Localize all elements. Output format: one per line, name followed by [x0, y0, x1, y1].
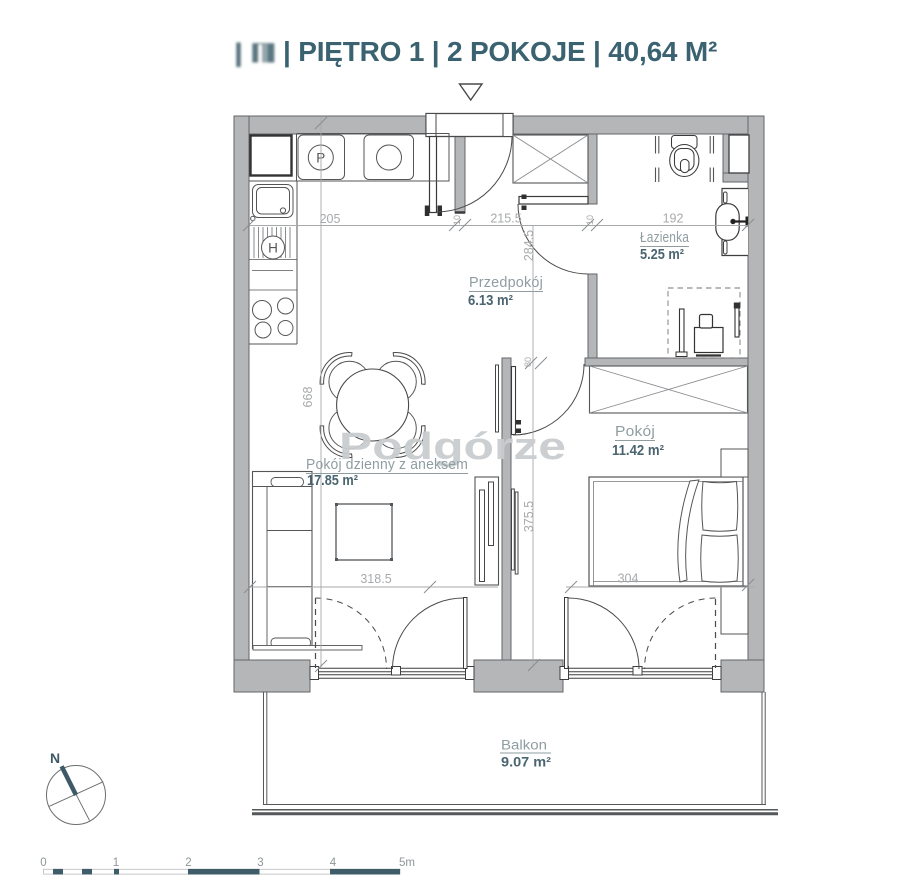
svg-text:10: 10	[452, 215, 462, 225]
svg-text:668: 668	[301, 387, 315, 408]
svg-text:Łazienka: Łazienka	[640, 229, 689, 246]
svg-text:17.85 m²: 17.85 m²	[307, 473, 358, 489]
svg-text:9.07 m²: 9.07 m²	[501, 755, 552, 770]
svg-text:80: 80	[523, 357, 533, 367]
svg-text:215.5: 215.5	[490, 212, 521, 226]
svg-text:205: 205	[320, 212, 341, 226]
svg-text:0: 0	[40, 857, 46, 869]
svg-text:284.5: 284.5	[522, 230, 536, 261]
svg-text:318.5: 318.5	[360, 572, 391, 586]
svg-text:10: 10	[585, 215, 595, 225]
svg-text:H: H	[268, 240, 278, 255]
svg-text:| PIĘTRO 1 | 2 POKOJE | 40,64: | PIĘTRO 1 | 2 POKOJE | 40,64 M²	[283, 36, 717, 67]
svg-text:Pokój dzienny z aneksem: Pokój dzienny z aneksem	[306, 456, 468, 473]
svg-text:N: N	[50, 750, 60, 766]
svg-text:2: 2	[185, 857, 191, 869]
svg-text:Przedpokój: Przedpokój	[469, 274, 543, 291]
svg-text:Balkon: Balkon	[501, 738, 547, 753]
svg-text:192: 192	[663, 212, 684, 226]
svg-text:3: 3	[257, 857, 263, 869]
svg-text:1: 1	[113, 857, 119, 869]
svg-text:6.13 m²: 6.13 m²	[468, 293, 513, 309]
svg-text:5m: 5m	[399, 857, 415, 869]
svg-text:5.25 m²: 5.25 m²	[640, 247, 684, 263]
svg-text:304: 304	[618, 572, 639, 586]
svg-text:4: 4	[330, 857, 337, 869]
svg-text:375.5: 375.5	[522, 501, 536, 532]
svg-text:Pokój: Pokój	[615, 423, 655, 440]
svg-text:11.42 m²: 11.42 m²	[612, 443, 664, 459]
